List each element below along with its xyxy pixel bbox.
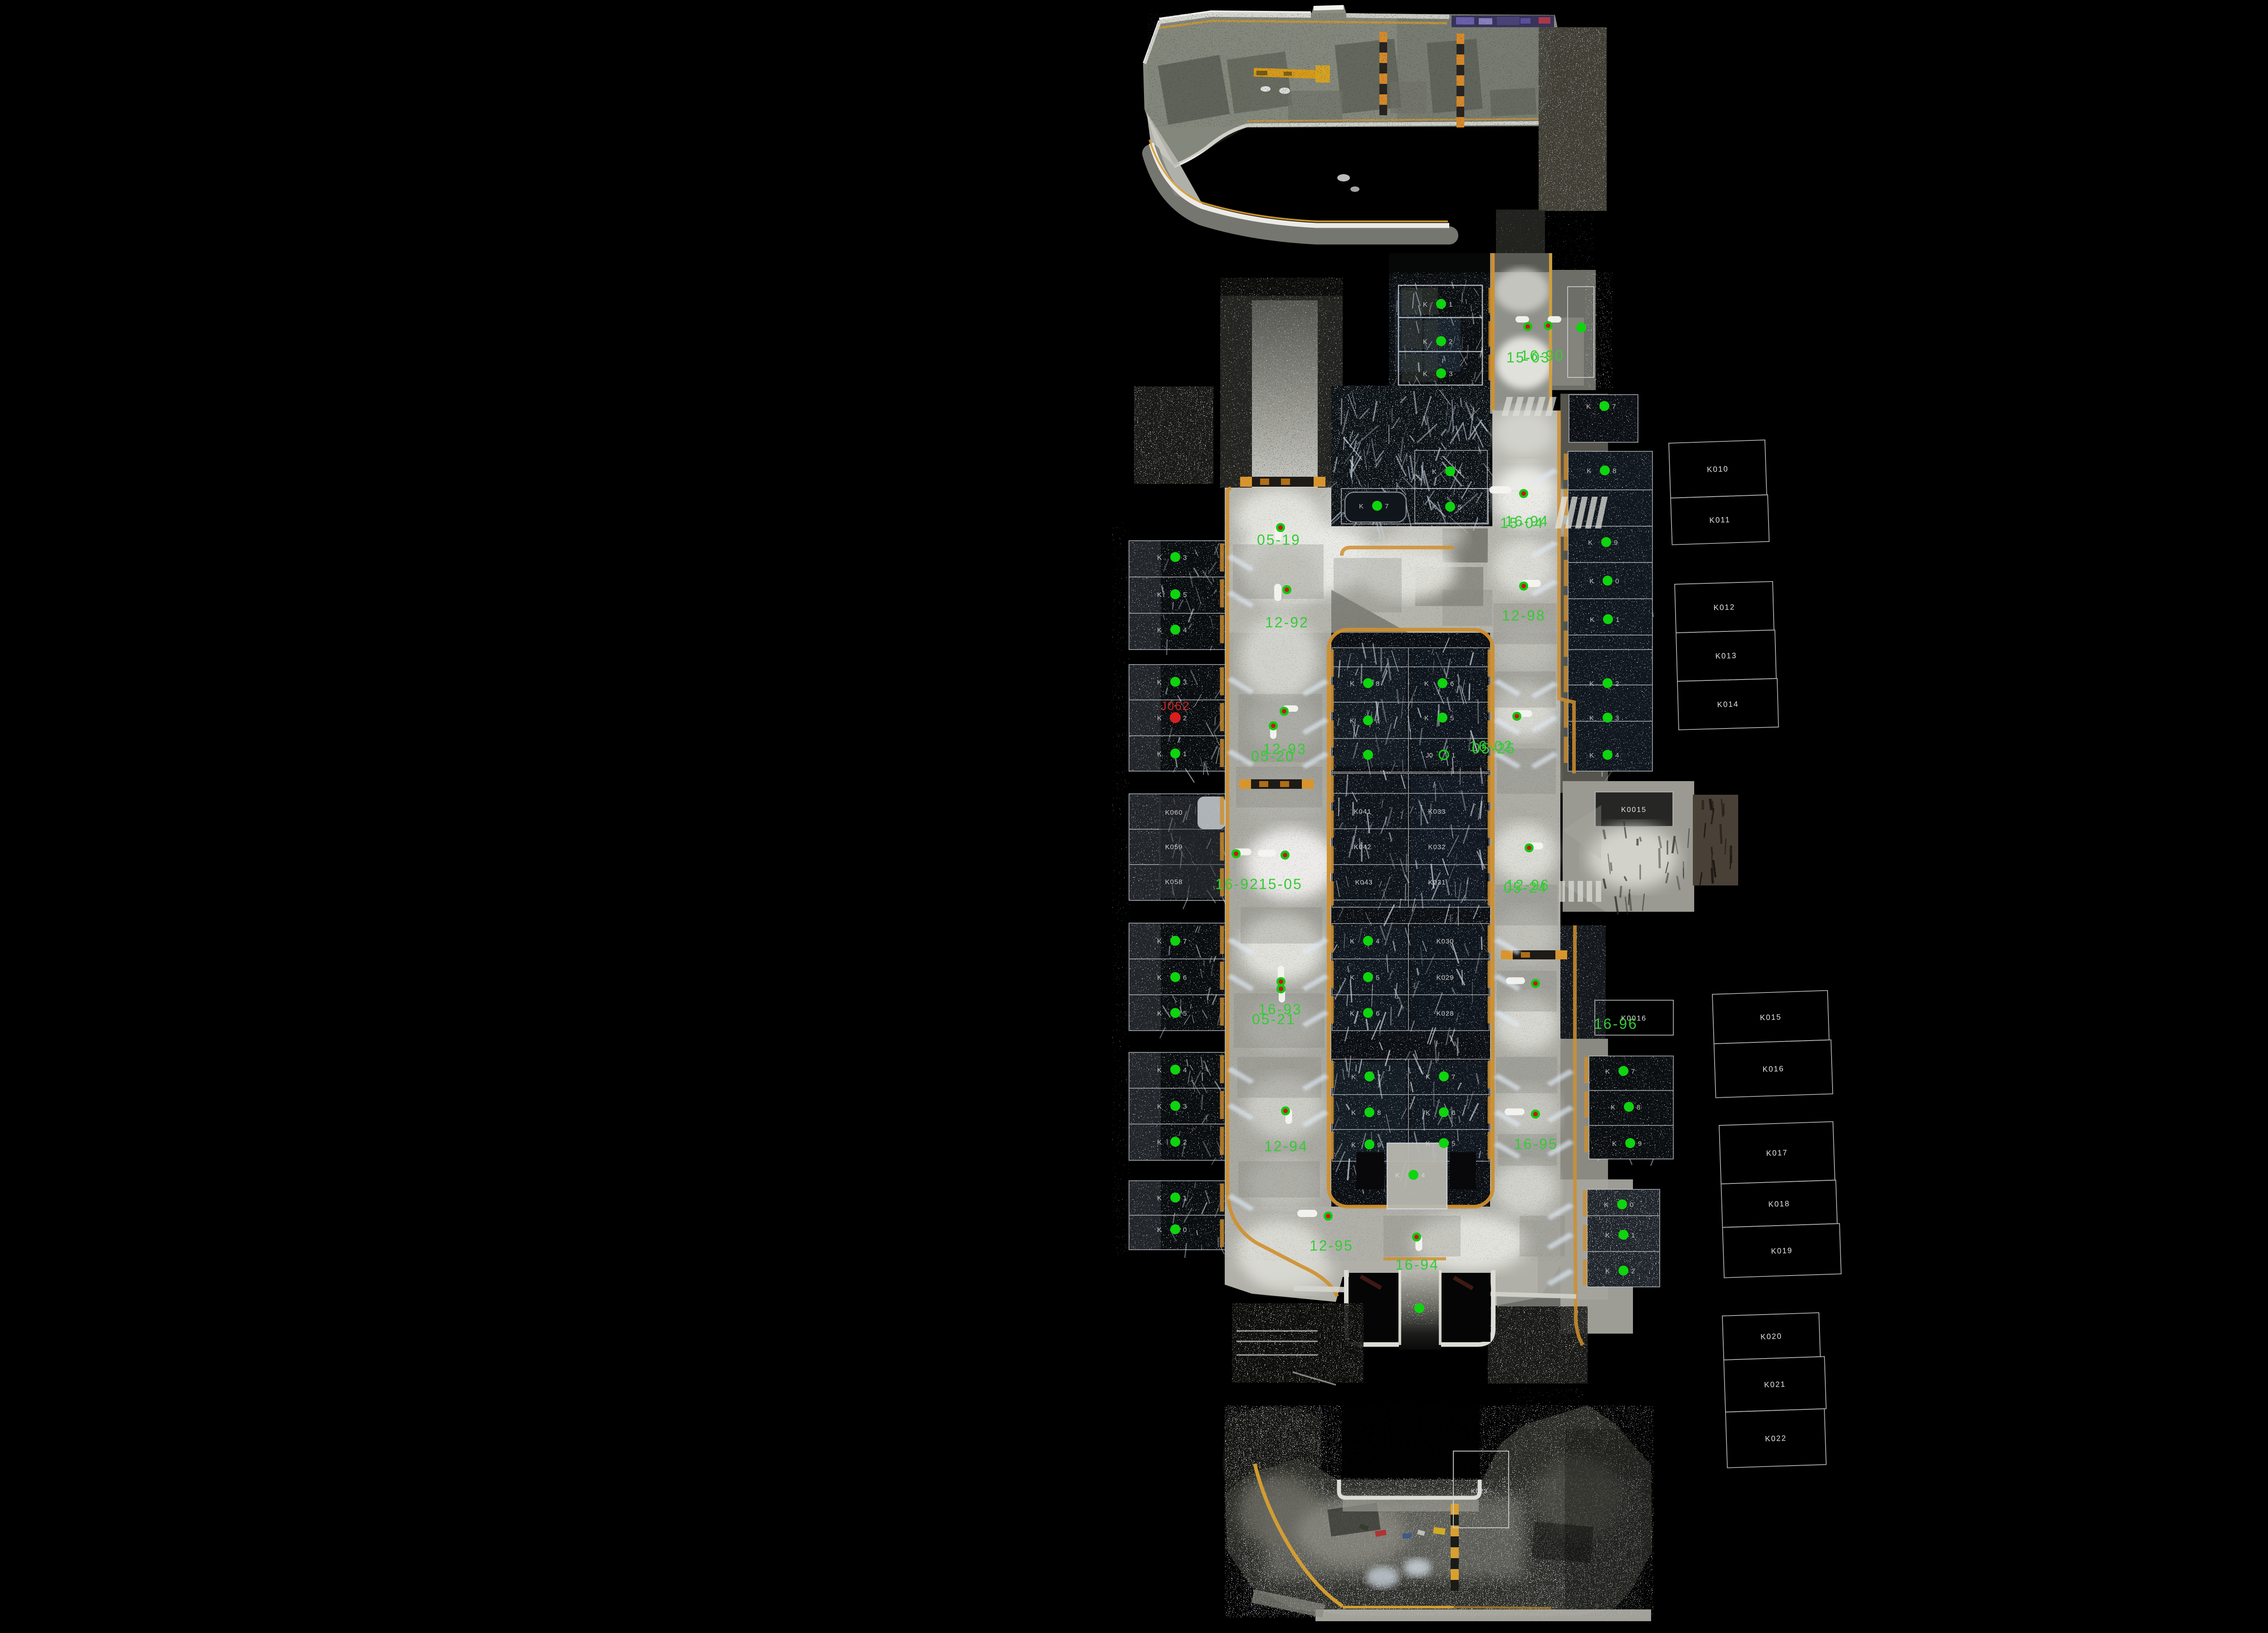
svg-text:K: K <box>1605 1068 1610 1076</box>
svg-text:0: 0 <box>1615 577 1619 585</box>
svg-text:K: K <box>1157 714 1162 722</box>
svg-text:K: K <box>1157 1139 1162 1146</box>
svg-text:K031: K031 <box>1428 879 1446 886</box>
svg-text:K: K <box>1605 1232 1610 1239</box>
svg-text:5: 5 <box>1450 714 1454 722</box>
svg-text:a: a <box>1376 717 1380 725</box>
svg-text:K: K <box>1423 301 1427 308</box>
svg-text:16-92: 16-92 <box>1215 876 1259 892</box>
svg-text:2: 2 <box>1631 1267 1635 1275</box>
svg-text:3: 3 <box>1615 714 1619 722</box>
svg-text:4: 4 <box>1458 468 1461 476</box>
svg-text:1: 1 <box>1452 752 1455 759</box>
svg-text:6: 6 <box>1183 974 1187 982</box>
svg-text:K: K <box>1590 616 1594 624</box>
svg-text:K: K <box>1612 1140 1617 1148</box>
svg-text:K012: K012 <box>1713 603 1735 612</box>
svg-text:3: 3 <box>1183 1103 1187 1110</box>
svg-text:12-94: 12-94 <box>1264 1138 1308 1154</box>
svg-text:K: K <box>1426 1140 1430 1148</box>
svg-text:12-92: 12-92 <box>1265 614 1309 631</box>
svg-text:K: K <box>1351 1141 1356 1149</box>
svg-text:9: 9 <box>1614 539 1618 547</box>
svg-text:K016: K016 <box>1762 1064 1784 1074</box>
svg-text:1: 1 <box>1631 1232 1635 1239</box>
svg-text:K042: K042 <box>1354 843 1371 851</box>
svg-text:K: K <box>1157 679 1162 686</box>
svg-text:K: K <box>1350 1010 1354 1017</box>
svg-text:K: K <box>1589 752 1594 759</box>
svg-text:9: 9 <box>1377 1141 1381 1149</box>
svg-text:K023: K023 <box>1471 1487 1488 1495</box>
svg-text:K059: K059 <box>1165 843 1183 851</box>
svg-text:2: 2 <box>1615 680 1619 688</box>
svg-text:K: K <box>1350 680 1354 688</box>
svg-text:7: 7 <box>1452 1073 1455 1081</box>
svg-text:7: 7 <box>1631 1068 1635 1076</box>
svg-text:K: K <box>1157 1226 1162 1234</box>
svg-text:K030: K030 <box>1436 938 1454 945</box>
svg-text:K: K <box>1423 338 1427 346</box>
svg-text:K028: K028 <box>1436 1010 1454 1017</box>
svg-text:K060: K060 <box>1165 809 1183 816</box>
svg-text:5: 5 <box>1458 504 1461 511</box>
svg-text:5: 5 <box>1452 1140 1455 1148</box>
svg-text:7: 7 <box>1385 503 1388 510</box>
svg-text:K: K <box>1604 1201 1608 1209</box>
svg-text:K041: K041 <box>1354 808 1371 816</box>
svg-text:5: 5 <box>1376 974 1379 982</box>
svg-text:K: K <box>1589 577 1594 585</box>
svg-text:2: 2 <box>1183 714 1187 722</box>
svg-text:K: K <box>1588 539 1593 547</box>
svg-text:K: K <box>1424 680 1429 688</box>
svg-text:12-96: 12-96 <box>1506 877 1550 893</box>
svg-text:K013: K013 <box>1715 651 1737 660</box>
svg-text:J0: J0 <box>1426 752 1433 759</box>
svg-text:K: K <box>1586 403 1591 411</box>
svg-text:K033: K033 <box>1428 808 1446 816</box>
svg-text:1: 1 <box>1183 1194 1187 1202</box>
svg-text:K: K <box>1350 938 1354 945</box>
svg-text:1: 1 <box>1183 750 1187 758</box>
svg-text:16-96: 16-96 <box>1594 1016 1638 1032</box>
svg-text:16-94: 16-94 <box>1505 513 1549 529</box>
svg-text:K017: K017 <box>1766 1149 1788 1158</box>
svg-text:K029: K029 <box>1436 974 1454 982</box>
svg-text:K: K <box>1426 1109 1430 1117</box>
svg-text:K: K <box>1157 938 1162 945</box>
svg-text:K019: K019 <box>1771 1246 1793 1256</box>
svg-text:K: K <box>1157 974 1162 982</box>
svg-text:K: K <box>1432 504 1437 511</box>
svg-text:K: K <box>1157 750 1162 758</box>
svg-text:K: K <box>1350 974 1354 982</box>
svg-text:7: 7 <box>1377 1073 1381 1081</box>
svg-text:K021: K021 <box>1764 1380 1786 1389</box>
svg-text:6: 6 <box>1450 680 1454 688</box>
svg-text:K020: K020 <box>1760 1332 1782 1341</box>
svg-text:3: 3 <box>1183 554 1187 562</box>
svg-text:0: 0 <box>1183 1226 1187 1234</box>
svg-text:4: 4 <box>1615 752 1619 759</box>
svg-text:K: K <box>1350 717 1354 725</box>
svg-text:4: 4 <box>1421 1172 1425 1179</box>
svg-text:16-95: 16-95 <box>1514 1136 1558 1152</box>
svg-text:K: K <box>1157 1103 1162 1110</box>
svg-text:K: K <box>1157 554 1162 562</box>
svg-text:1: 1 <box>1449 301 1452 308</box>
svg-text:K: K <box>1157 1194 1162 1202</box>
svg-text:K014: K014 <box>1717 700 1739 709</box>
svg-text:2: 2 <box>1449 338 1452 346</box>
svg-text:7: 7 <box>1183 938 1187 945</box>
svg-text:5: 5 <box>1183 591 1187 599</box>
svg-text:K: K <box>1589 680 1594 688</box>
svg-text:05-21: 05-21 <box>1252 1011 1296 1027</box>
svg-text:K011: K011 <box>1709 515 1730 525</box>
svg-text:K: K <box>1157 591 1162 599</box>
svg-text:K032: K032 <box>1428 843 1446 851</box>
svg-text:3: 3 <box>1449 370 1452 378</box>
svg-text:K0015: K0015 <box>1621 806 1647 814</box>
svg-text:K: K <box>1351 1109 1356 1117</box>
svg-text:6: 6 <box>1452 1109 1455 1117</box>
svg-text:K: K <box>1587 467 1591 475</box>
svg-text:5: 5 <box>1183 1010 1187 1017</box>
svg-text:16-90: 16-90 <box>1520 347 1564 364</box>
svg-text:K: K <box>1605 1267 1610 1275</box>
svg-text:4: 4 <box>1183 626 1187 634</box>
svg-text:15-05: 15-05 <box>1259 876 1303 892</box>
svg-text:K: K <box>1359 503 1364 510</box>
svg-text:7: 7 <box>1612 403 1616 411</box>
svg-text:12-95: 12-95 <box>1310 1237 1354 1254</box>
svg-text:8: 8 <box>1637 1104 1640 1111</box>
svg-text:K: K <box>1395 1172 1400 1179</box>
svg-text:0: 0 <box>1630 1201 1633 1209</box>
svg-text:K010: K010 <box>1707 464 1729 474</box>
svg-text:K022: K022 <box>1765 1434 1787 1443</box>
svg-text:8: 8 <box>1377 1109 1381 1117</box>
svg-text:K: K <box>1423 370 1427 378</box>
svg-text:1: 1 <box>1616 616 1619 624</box>
svg-text:K: K <box>1611 1104 1615 1111</box>
svg-text:8: 8 <box>1613 467 1616 475</box>
svg-text:16-94: 16-94 <box>1395 1257 1439 1273</box>
svg-text:K: K <box>1157 1066 1162 1074</box>
svg-text:K058: K058 <box>1165 878 1183 886</box>
svg-text:K: K <box>1157 1010 1162 1017</box>
svg-text:4: 4 <box>1376 938 1379 945</box>
svg-text:K: K <box>1426 1073 1430 1081</box>
svg-text:12-98: 12-98 <box>1502 607 1546 624</box>
svg-text:K: K <box>1424 714 1429 722</box>
svg-text:K: K <box>1157 626 1162 634</box>
svg-text:K: K <box>1589 714 1594 722</box>
svg-text:05-19: 05-19 <box>1257 532 1301 548</box>
svg-text:16-02: 16-02 <box>1469 738 1513 754</box>
svg-text:4: 4 <box>1183 1066 1187 1074</box>
svg-text:3: 3 <box>1183 679 1187 686</box>
svg-text:2: 2 <box>1183 1139 1187 1146</box>
svg-text:K: K <box>1432 468 1437 476</box>
svg-text:6: 6 <box>1376 1010 1379 1017</box>
svg-text:K: K <box>1351 1073 1356 1081</box>
svg-text:05-20: 05-20 <box>1251 748 1295 764</box>
svg-text:J062: J062 <box>1161 699 1190 713</box>
svg-text:8: 8 <box>1376 680 1379 688</box>
svg-text:K015: K015 <box>1760 1012 1782 1022</box>
svg-text:9: 9 <box>1638 1140 1642 1148</box>
svg-text:K018: K018 <box>1768 1199 1790 1209</box>
svg-text:K043: K043 <box>1355 879 1373 886</box>
